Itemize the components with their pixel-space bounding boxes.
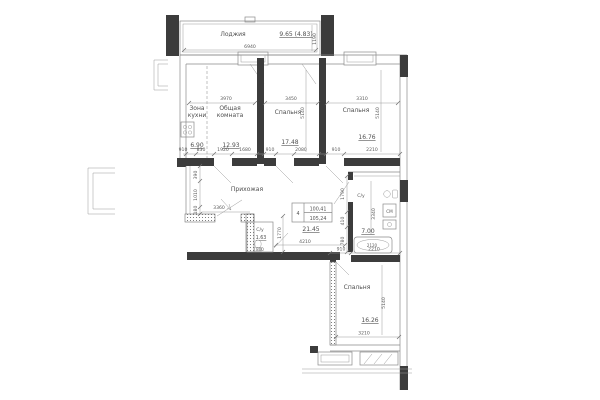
kitchen-label-2: кухни bbox=[188, 112, 207, 119]
bedroom-mid-label: Спальня bbox=[275, 109, 302, 116]
living-room: Общая комната 12.93 bbox=[217, 105, 244, 149]
dim-bedroom-right-door: 910 bbox=[332, 147, 341, 153]
stamp-area-total: 105,24 bbox=[310, 216, 327, 222]
hallway-area: 21.45 bbox=[302, 226, 319, 233]
bathroom-label: С/у bbox=[357, 193, 365, 199]
washing-machine-label: СМ bbox=[386, 209, 393, 214]
apartment-stamp: 4 100,41 105,24 bbox=[292, 203, 332, 222]
toilet-2-icon bbox=[384, 190, 398, 198]
kitchen-area: 6.90 bbox=[190, 142, 204, 149]
window-top-bedroom-right bbox=[344, 52, 376, 65]
dim-corridor-1: 1790 bbox=[340, 188, 346, 200]
dim-bedroom-mid-pier: 2080 bbox=[295, 147, 307, 153]
wc-label: С/у bbox=[256, 227, 264, 233]
loggia-left-column bbox=[166, 15, 179, 56]
window-bottom-2 bbox=[360, 352, 398, 365]
sink-icon bbox=[383, 220, 396, 229]
floor-plan-canvas: Лоджия 9.65 (4.83) 6940 1190 bbox=[0, 0, 600, 400]
window-bottom-1 bbox=[318, 352, 352, 365]
left-pilaster-outer bbox=[154, 60, 168, 90]
dim-chain-upper-wall: 910 830 1920 1680 910 2080 910 2210 bbox=[179, 147, 402, 156]
loggia-width-dim: 6940 bbox=[244, 44, 256, 50]
bedroom-right: Спальня 16.76 5140 bbox=[343, 70, 381, 152]
stair-core-inner bbox=[93, 173, 115, 209]
loggia-depth-dim: 1190 bbox=[312, 33, 318, 45]
living-area: 12.93 bbox=[222, 142, 239, 149]
upper-band-bottom-wall bbox=[186, 158, 400, 183]
loggia-area: 9.65 (4.83) bbox=[279, 31, 312, 38]
living-label-2: комната bbox=[217, 112, 244, 119]
bedroom-right-depth-dim: 5140 bbox=[375, 107, 381, 119]
kitchen-zone: Зона кухни 6.90 bbox=[181, 105, 206, 149]
dim-hall-left-3: 180 bbox=[193, 206, 199, 215]
wall-bedroom-bedroom bbox=[319, 58, 326, 164]
bedroom-bottom-label: Спальня bbox=[344, 284, 371, 291]
dim-bedroom-right-pier: 2210 bbox=[366, 147, 378, 153]
bedroom-right-label: Спальня bbox=[343, 107, 370, 114]
bedroom-bottom-pier-dim: 2210 bbox=[368, 247, 380, 253]
bedroom-bottom-area: 16.26 bbox=[361, 317, 378, 324]
dim-bedroom-mid-door: 910 bbox=[266, 147, 275, 153]
wc-width-dim: 800 bbox=[256, 247, 264, 252]
hallway-width-dim: 4210 bbox=[299, 239, 311, 245]
bedroom-mid-depth-dim: 5140 bbox=[300, 107, 306, 119]
loggia-right-column bbox=[321, 15, 334, 56]
dim-corridor-3: 780 bbox=[340, 237, 346, 246]
loggia-label: Лоджия bbox=[220, 31, 246, 38]
right-wall-pilaster-top bbox=[400, 55, 408, 77]
bedroom-bottom-left-wall bbox=[330, 262, 336, 345]
dim-upper-1: 910 bbox=[179, 147, 188, 153]
bedroom-bottom-width-dim: 3210 bbox=[358, 331, 370, 337]
living-label-1: Общая bbox=[219, 105, 241, 112]
stove-icon bbox=[181, 122, 194, 137]
corridor-dims: 1790 410 780 bbox=[340, 174, 349, 254]
floor-plan-drawing: Лоджия 9.65 (4.83) 6940 1190 bbox=[0, 0, 600, 400]
bedroom-right-area: 16.76 bbox=[358, 134, 375, 141]
door-swing-living bbox=[214, 166, 231, 183]
dim-corridor-2: 410 bbox=[340, 217, 346, 226]
room-width-dims: 3970 3450 3310 bbox=[187, 96, 400, 105]
bedroom-bottom: 910 2210 Спальня 5140 16.26 3210 bbox=[302, 247, 412, 374]
left-pilaster-inner bbox=[158, 64, 168, 86]
bottom-wall-block bbox=[310, 346, 318, 353]
bathroom-area: 7.00 bbox=[361, 228, 375, 235]
stair-core-outer bbox=[88, 168, 115, 214]
door-swing-bedroom-mid bbox=[276, 166, 293, 183]
dim-hall-left-1: 390 bbox=[193, 171, 199, 180]
kitchen-label-1: Зона bbox=[189, 105, 204, 112]
living-width-dim: 3970 bbox=[220, 96, 232, 102]
bedroom-middle: Спальня 17.48 5140 bbox=[275, 70, 306, 152]
right-wall-pilaster-mid bbox=[400, 180, 408, 202]
hallway-entry-dim: 3360 bbox=[213, 205, 225, 211]
bathroom-depth-dim: 3340 bbox=[371, 208, 377, 220]
bedroom-mid-width-dim: 3450 bbox=[285, 96, 297, 102]
bedroom-right-width-dim: 3310 bbox=[356, 96, 368, 102]
right-wall-pilaster-bottom bbox=[400, 366, 408, 390]
stamp-area-living: 100,41 bbox=[310, 207, 327, 213]
balcony-door-swing-2 bbox=[302, 64, 316, 84]
wall-living-bedroom bbox=[257, 58, 264, 164]
bedroom-bottom-depth-dim: 5140 bbox=[381, 297, 387, 309]
wc-depth-dim: 1770 bbox=[277, 227, 283, 239]
dim-upper-4: 1680 bbox=[239, 147, 251, 153]
hallway-label: Прихожая bbox=[231, 186, 264, 193]
dim-hall-left-2: 1010 bbox=[193, 189, 199, 201]
loggia: Лоджия 9.65 (4.83) 6940 1190 bbox=[166, 15, 334, 56]
bedroom-bottom-door-dim: 910 bbox=[337, 247, 346, 253]
door-swing-bedroom-bottom bbox=[336, 262, 349, 275]
entry-wall-left bbox=[185, 214, 215, 222]
bedroom-mid-area: 17.48 bbox=[281, 139, 298, 146]
hallway-bottom-wall bbox=[187, 252, 340, 260]
wall-junction-block bbox=[177, 158, 186, 167]
door-swing-bedroom-right bbox=[326, 166, 343, 183]
stamp-flat-number: 4 bbox=[296, 211, 299, 217]
